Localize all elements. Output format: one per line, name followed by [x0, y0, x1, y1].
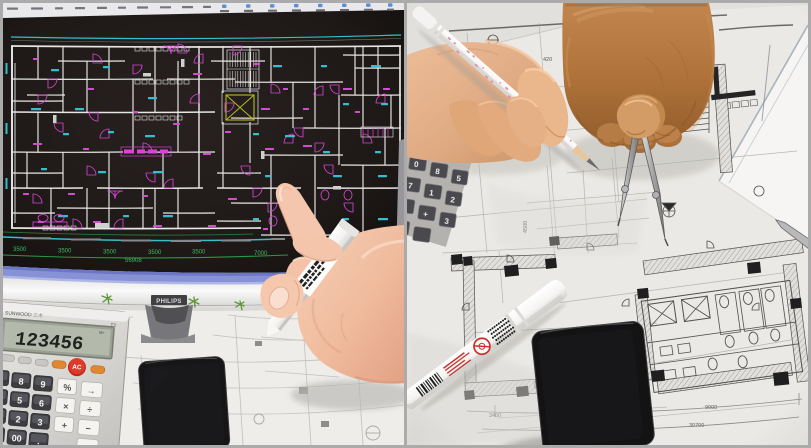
svg-text:56908: 56908	[125, 258, 142, 264]
svg-text:=: =	[84, 442, 90, 445]
svg-text:6: 6	[39, 398, 45, 408]
svg-text:3500: 3500	[58, 249, 72, 255]
svg-text:2: 2	[15, 414, 21, 424]
svg-text:3500: 3500	[13, 247, 27, 253]
svg-text:PHILIPS: PHILIPS	[156, 299, 181, 305]
svg-text:3500: 3500	[148, 250, 162, 256]
svg-text:00: 00	[11, 433, 22, 444]
svg-text:7000: 7000	[254, 251, 268, 257]
svg-text:9: 9	[40, 379, 46, 389]
svg-text:×: ×	[63, 401, 69, 411]
svg-text:%: %	[63, 382, 72, 393]
svg-text:M+: M+	[99, 330, 106, 335]
svg-text:→: →	[86, 385, 96, 396]
svg-text:−: −	[85, 423, 91, 433]
svg-text:8: 8	[18, 376, 24, 386]
svg-text:3500: 3500	[103, 250, 117, 256]
svg-text:3500: 3500	[192, 250, 206, 256]
svg-text:5: 5	[17, 395, 23, 405]
svg-text:3: 3	[37, 417, 43, 427]
svg-text:+: +	[61, 420, 67, 430]
svg-text:AC: AC	[72, 364, 82, 372]
svg-text:÷: ÷	[87, 404, 93, 414]
